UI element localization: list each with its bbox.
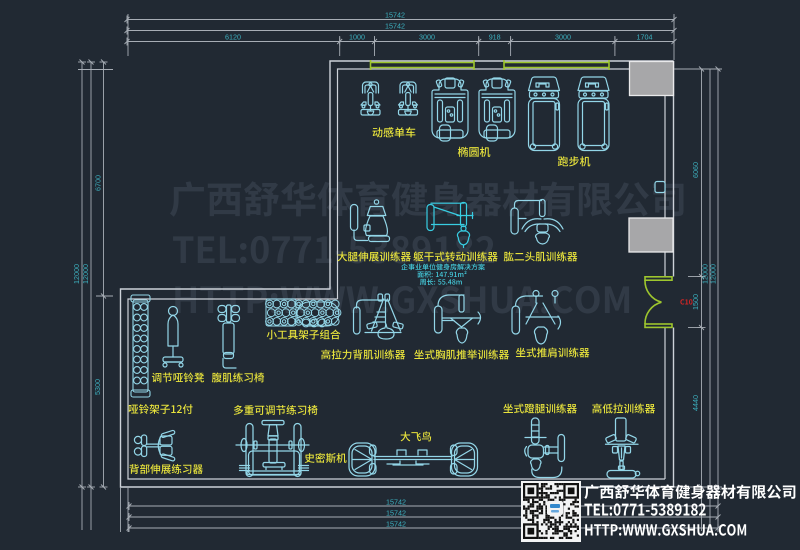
svg-text:12000: 12000 [709, 264, 718, 284]
svg-text:3000: 3000 [555, 33, 571, 42]
svg-text:1704: 1704 [637, 33, 653, 42]
svg-text:3000: 3000 [419, 33, 435, 42]
svg-text:12000: 12000 [81, 264, 90, 284]
svg-text:15742: 15742 [386, 520, 406, 529]
svg-text:1500: 1500 [691, 294, 700, 310]
svg-text:15742: 15742 [386, 509, 406, 518]
svg-text:6700: 6700 [94, 175, 103, 191]
svg-text:5300: 5300 [93, 379, 102, 395]
svg-text:4440: 4440 [691, 395, 700, 411]
svg-text:6060: 6060 [691, 162, 700, 178]
svg-text:15742: 15742 [386, 498, 406, 507]
svg-text:6120: 6120 [225, 33, 241, 42]
svg-text:15742: 15742 [385, 22, 405, 31]
svg-text:918: 918 [489, 33, 501, 42]
svg-text:12000: 12000 [72, 264, 81, 284]
svg-text:15742: 15742 [385, 11, 405, 20]
svg-text:1000: 1000 [349, 33, 365, 42]
